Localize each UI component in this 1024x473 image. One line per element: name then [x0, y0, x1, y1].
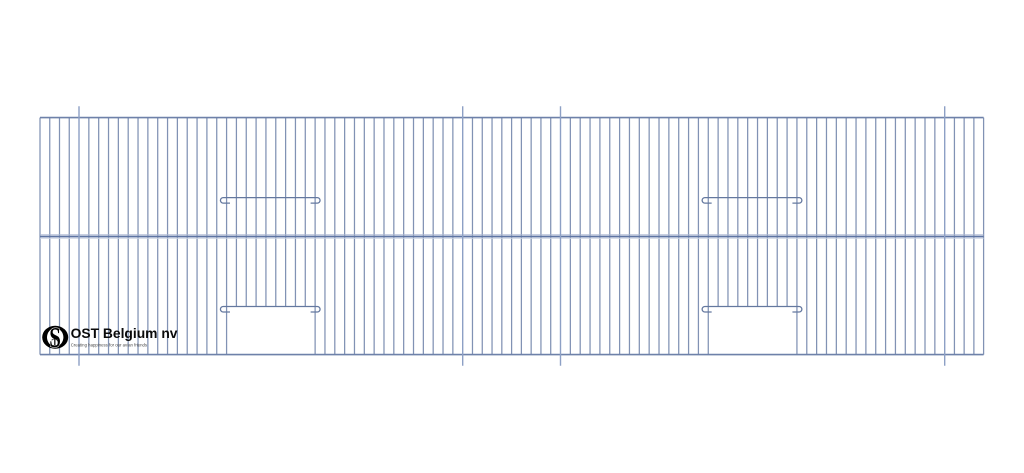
svg-text:T: T	[52, 339, 59, 349]
svg-text:OST Belgium nv: OST Belgium nv	[71, 326, 178, 341]
svg-text:Creating happiness for our avi: Creating happiness for our avian friends	[71, 343, 148, 349]
